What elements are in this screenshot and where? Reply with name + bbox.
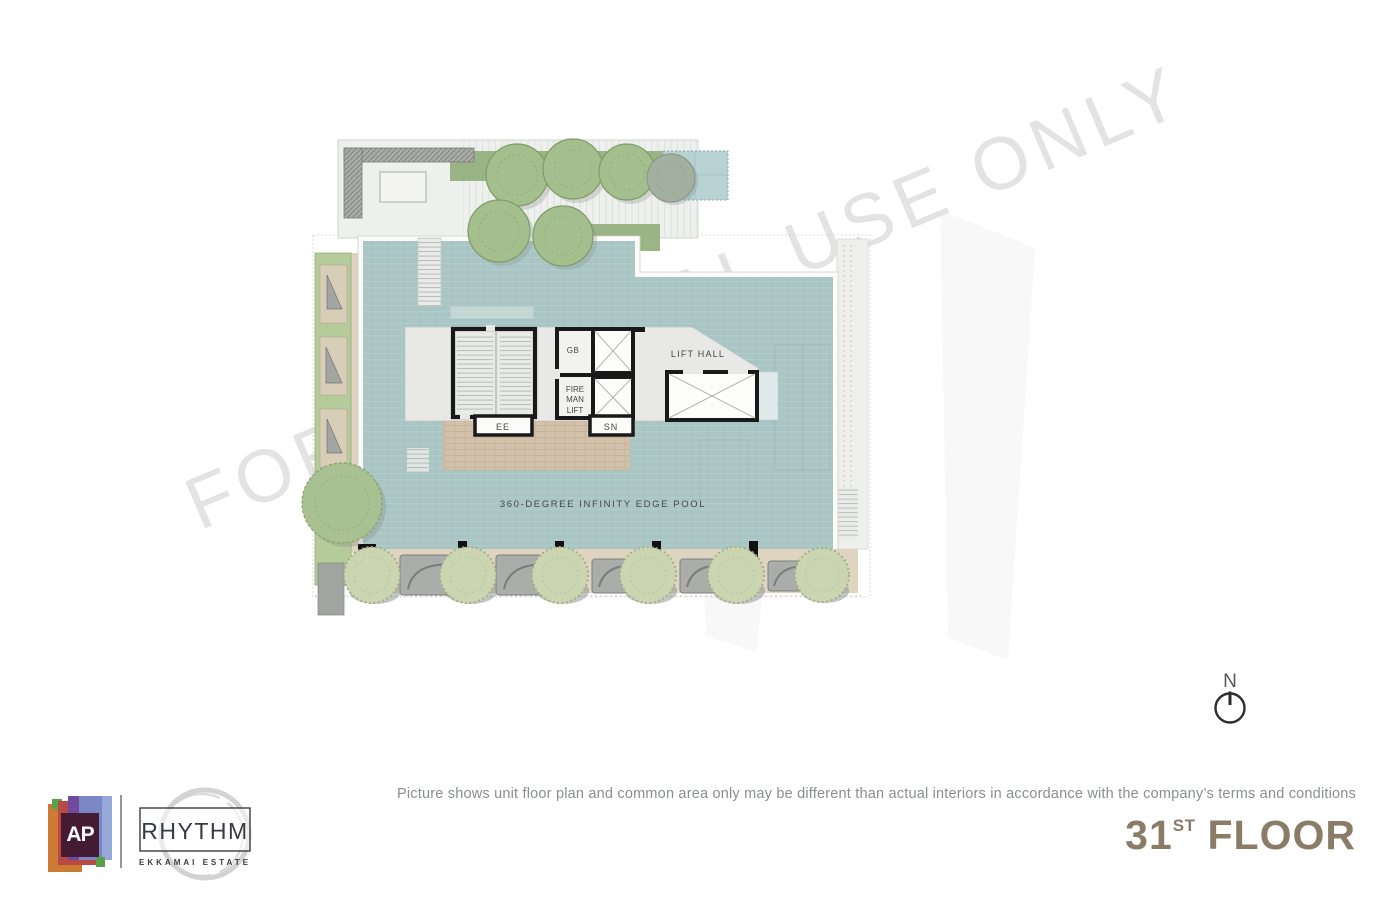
ee-room-label: EE — [496, 422, 510, 432]
ap-logo-green-accent — [96, 857, 105, 867]
lift-shaft-b — [593, 377, 633, 418]
sn-room: SN — [590, 416, 633, 435]
fireman-lift-label-1: FIRE — [566, 385, 584, 394]
fireman-lift-room: FIRE MAN LIFT — [555, 369, 593, 418]
fireman-lift-label-3: LIFT — [567, 406, 584, 415]
floor-word: FLOOR — [1208, 812, 1356, 858]
lift-hall-label: LIFT HALL — [671, 349, 725, 359]
promenade — [315, 541, 862, 615]
project-name: RHYTHM — [141, 818, 248, 844]
outdoor-stairs — [838, 487, 858, 539]
right-walkway — [837, 239, 868, 549]
floor-plan-page: FOR INTERNAL USE ONLY — [0, 0, 1400, 910]
fireman-lift-label-2: MAN — [566, 395, 584, 404]
pool-caption: 360-DEGREE INFINITY EDGE POOL — [500, 499, 706, 510]
pool-corner-steps — [407, 448, 429, 472]
gb-room-label: GB — [567, 346, 580, 355]
gray-planter — [318, 563, 344, 615]
pool-entry-stairs — [418, 238, 441, 306]
north-compass-icon: N — [1205, 670, 1255, 732]
lift-shaft-a — [593, 329, 633, 373]
deck-table — [380, 172, 426, 202]
floor-number: 31 — [1125, 812, 1173, 858]
disclaimer-text: Picture shows unit floor plan and common… — [397, 786, 1356, 802]
lift-hall: LIFT HALL — [671, 349, 725, 359]
ap-logo: AP — [46, 791, 116, 881]
ee-room: EE — [475, 416, 532, 435]
ap-monogram: AP — [61, 813, 99, 857]
floor-plan-drawing: EE GB FIRE MAN LIFT — [300, 125, 880, 640]
project-location: EKKAMAI ESTATE — [139, 858, 251, 867]
pool-ledge — [450, 306, 534, 319]
sn-room-label: SN — [604, 422, 619, 432]
right-lift-shaft — [667, 367, 757, 420]
logo-divider — [120, 795, 122, 868]
floor-title: 31STFLOOR — [1125, 812, 1356, 859]
rhythm-logo: RHYTHM EKKAMAI ESTATE — [137, 781, 267, 893]
floor-ordinal: ST — [1173, 816, 1196, 835]
gb-room: GB — [557, 329, 593, 375]
north-label: N — [1223, 671, 1237, 692]
